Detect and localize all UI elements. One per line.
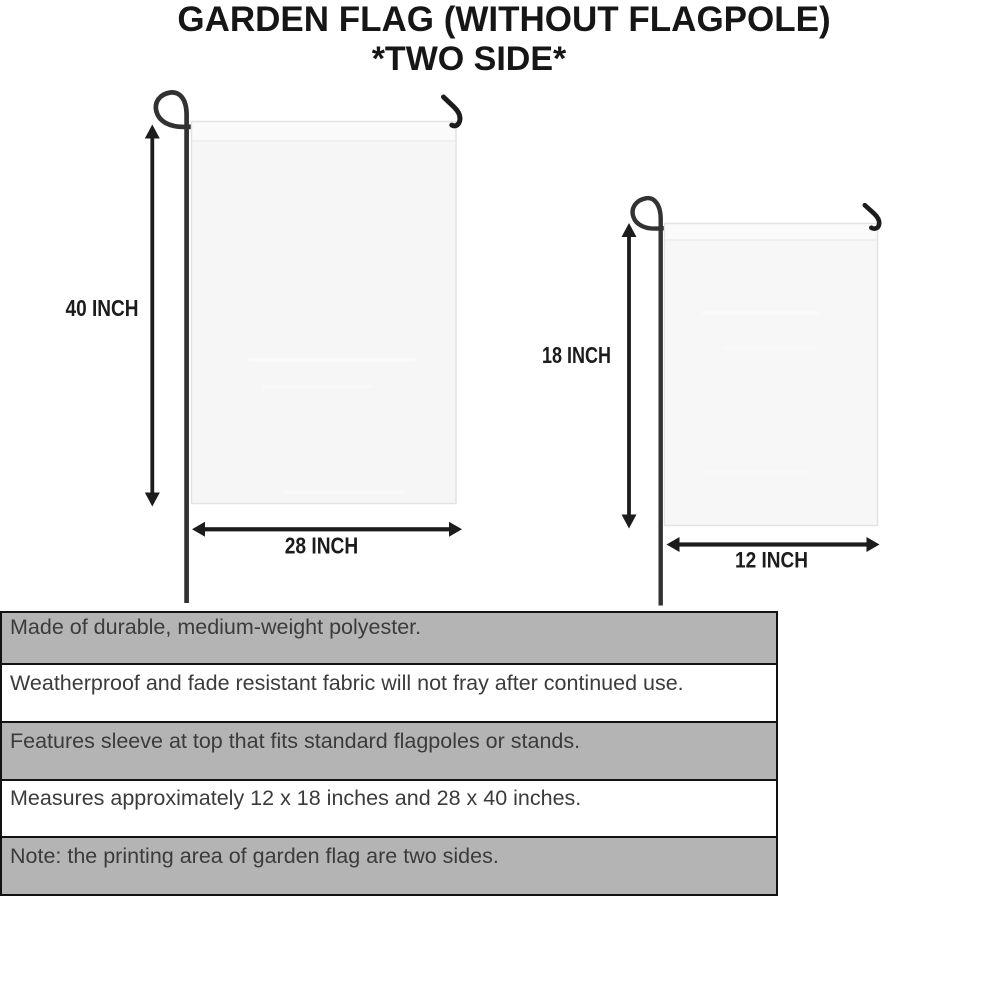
svg-text:40 INCH: 40 INCH <box>66 295 139 321</box>
svg-text:28 INCH: 28 INCH <box>285 533 359 559</box>
svg-text:12 INCH: 12 INCH <box>735 548 808 573</box>
svg-text:18 INCH: 18 INCH <box>542 342 611 368</box>
